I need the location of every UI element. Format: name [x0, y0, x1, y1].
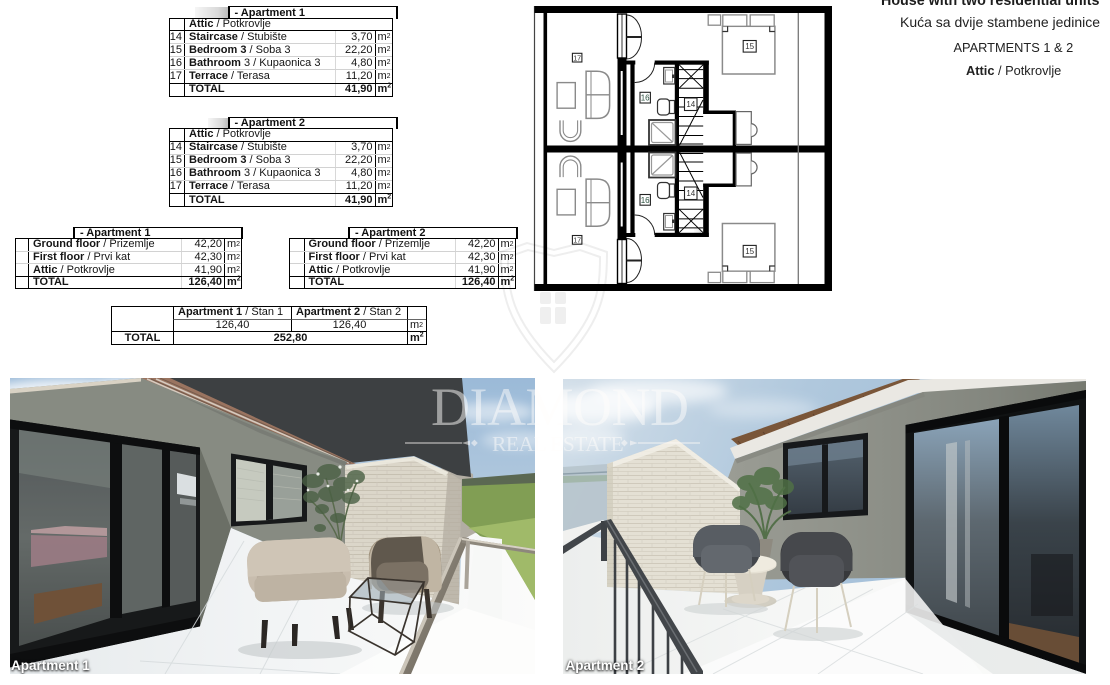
svg-text:14: 14 — [686, 189, 695, 198]
svg-text:14: 14 — [686, 100, 695, 109]
svg-text:16: 16 — [641, 196, 650, 205]
svg-text:15: 15 — [745, 42, 754, 51]
svg-text:17: 17 — [573, 53, 581, 62]
svg-text:15: 15 — [745, 247, 754, 256]
svg-text:16: 16 — [641, 94, 650, 103]
